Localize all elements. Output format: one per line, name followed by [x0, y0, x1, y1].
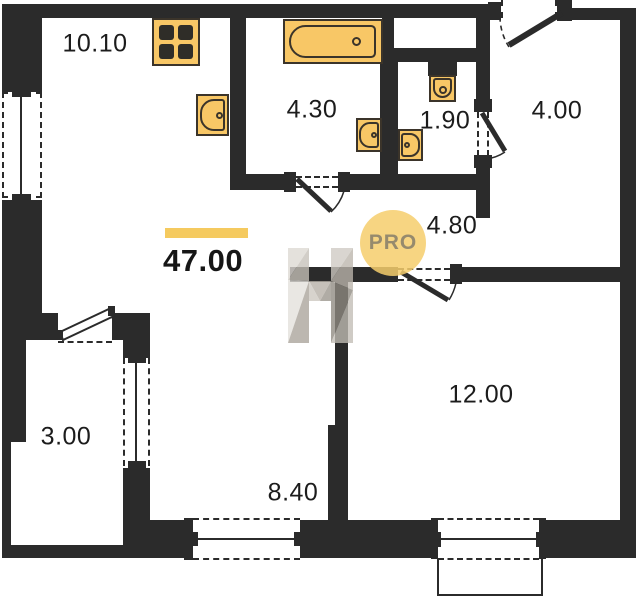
window-cap [128, 461, 146, 470]
door-opening [58, 335, 112, 343]
toilet-tank [428, 57, 457, 76]
burner [178, 44, 193, 59]
wall-segment [2, 545, 125, 558]
door-opening [477, 112, 489, 156]
burner [159, 25, 174, 40]
door-opening [501, 0, 557, 18]
bathtub-drain [352, 37, 361, 46]
door-post [284, 172, 296, 192]
wall-segment [380, 48, 398, 190]
window-cap [128, 354, 146, 363]
wall-segment [335, 282, 348, 425]
wall-segment [543, 520, 636, 558]
floor-plan: 47.00 PRO 10.10 4.30 1.90 4.00 4.80 12.0… [0, 0, 640, 600]
room-label-wc: 1.90 [420, 107, 471, 136]
wall-segment [2, 4, 42, 92]
wall-segment [230, 18, 246, 190]
window-cap [536, 532, 549, 547]
pro-badge: PRO [360, 210, 426, 276]
burner [159, 44, 174, 59]
window-ledge [437, 558, 543, 596]
window-pane [195, 538, 298, 540]
door-post [450, 264, 462, 284]
toilet-drain [439, 86, 447, 94]
doors-and-watermark-layer [0, 0, 640, 600]
wall-segment [2, 313, 58, 340]
wall-segment [2, 340, 26, 442]
window-pane [135, 360, 137, 464]
room-label-bedroom: 12.00 [448, 381, 513, 410]
sink-drain [404, 142, 410, 148]
wall-segment [457, 267, 620, 282]
wall-segment [2, 440, 11, 558]
window [2, 92, 42, 198]
bathtub-basin [289, 25, 376, 58]
window-cap [428, 532, 441, 547]
total-area-label: 47.00 [163, 243, 243, 279]
stove-icon [152, 18, 200, 66]
door-post [488, 2, 501, 20]
wall-segment [230, 174, 290, 190]
room-label-entry: 4.00 [532, 97, 583, 126]
window-cap [12, 87, 31, 97]
door-post [338, 172, 350, 192]
wall-segment [2, 200, 42, 313]
window-pane [440, 538, 539, 540]
room-label-bathroom: 4.30 [287, 96, 338, 125]
wall-segment [476, 18, 490, 100]
sink-drain [371, 132, 377, 138]
window-cap [294, 532, 306, 546]
door-opening [296, 176, 338, 188]
room-label-kitchen-living: 10.10 [62, 30, 127, 59]
room-label-living: 8.40 [268, 479, 319, 508]
window-cap [186, 532, 198, 546]
wall-segment [300, 520, 438, 558]
room-label-hallway: 4.80 [427, 212, 478, 241]
accent-underline [165, 228, 248, 238]
sink-drain [216, 112, 223, 119]
wall-segment [345, 174, 478, 190]
entrance-door [500, 13, 562, 47]
room-label-balcony: 3.00 [41, 423, 92, 452]
wall-segment [2, 4, 495, 18]
door-post [474, 155, 492, 168]
door-post [474, 99, 492, 112]
window-cap [12, 194, 31, 204]
wall-segment [328, 425, 348, 520]
window-pane [20, 95, 22, 196]
wall-segment [143, 520, 189, 558]
wall-segment [620, 8, 636, 558]
burner [178, 25, 193, 40]
door-post [557, 0, 572, 21]
